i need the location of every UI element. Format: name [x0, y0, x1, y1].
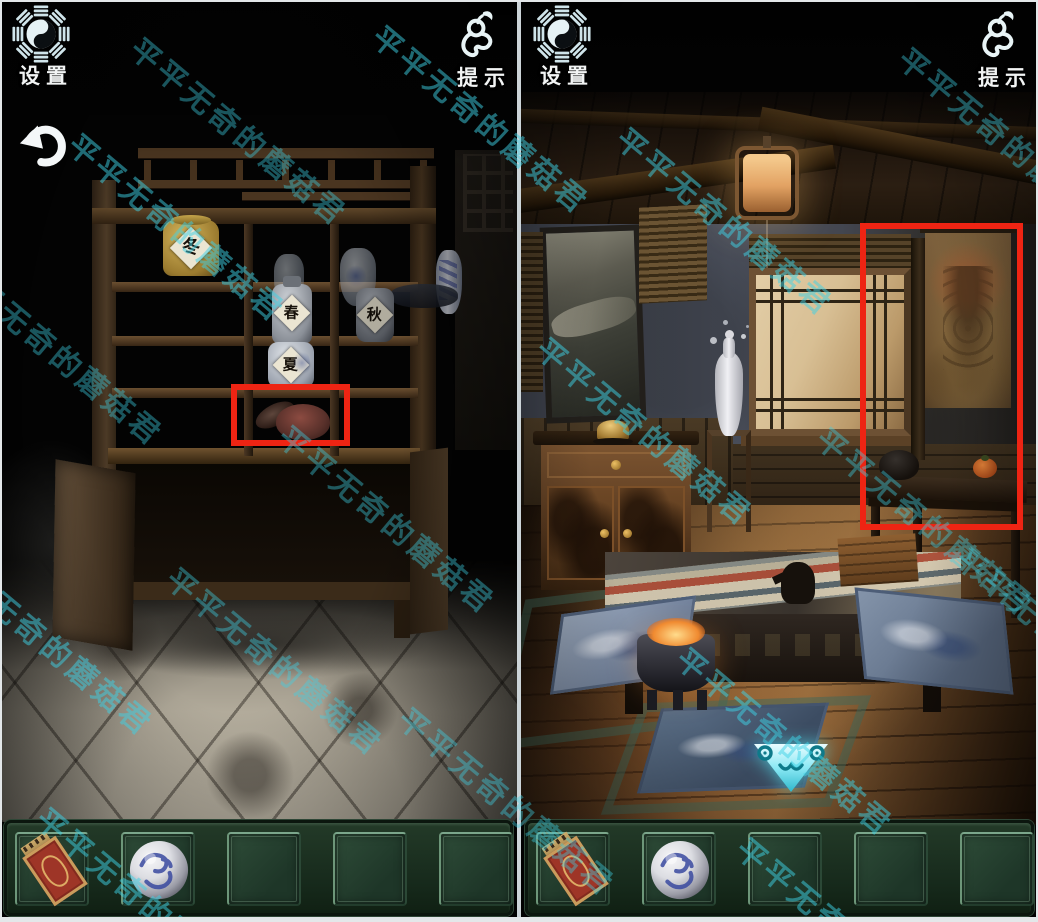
- inventory-slot-1[interactable]: [536, 832, 610, 906]
- inventory-slot-4[interactable]: [854, 832, 928, 906]
- brazier-leg: [647, 690, 657, 710]
- right-scene-panel: 设置 提示: [521, 0, 1038, 922]
- jar-label: 秋: [357, 297, 394, 334]
- inventory-bar: [4, 820, 513, 916]
- flower-vase[interactable]: [715, 352, 743, 436]
- inventory-slot-4[interactable]: [333, 832, 407, 906]
- shelf-leg: [394, 600, 410, 638]
- charcoal-brazier[interactable]: [637, 618, 715, 710]
- hint-button[interactable]: [452, 8, 502, 66]
- bamboo-blind[interactable]: [639, 204, 707, 304]
- jar-label: 夏: [273, 347, 310, 384]
- shelf-rail-lower: [242, 192, 434, 200]
- inventory-slot-3[interactable]: [748, 832, 822, 906]
- inventory-slot-2[interactable]: [642, 832, 716, 906]
- wooden-box[interactable]: [837, 533, 918, 586]
- item-porcelain-ball[interactable]: [128, 839, 190, 901]
- inventory-bar: [525, 820, 1034, 916]
- left-scene-panel: 冬 春 秋 夏: [0, 0, 517, 922]
- settings-button[interactable]: [12, 5, 70, 67]
- inventory-slot-5[interactable]: [960, 832, 1034, 906]
- highlight-rect-right: [860, 223, 1023, 530]
- floor-cushion[interactable]: [855, 587, 1014, 694]
- cloud-arrow-down-icon: [750, 738, 832, 796]
- nav-down-button[interactable]: [750, 738, 832, 800]
- panel-divider: [517, 0, 521, 922]
- inventory-slot-5[interactable]: [439, 832, 513, 906]
- inventory-slot-2[interactable]: [121, 832, 195, 906]
- cabinet-drawer[interactable]: [547, 452, 685, 478]
- inventory-slot-3[interactable]: [227, 832, 301, 906]
- shelf-rail: [138, 180, 434, 188]
- undo-arrow-icon: [16, 122, 70, 170]
- cabinet-base: [108, 582, 420, 600]
- hint-button[interactable]: [973, 8, 1023, 66]
- bagua-yinyang-icon: [533, 5, 591, 63]
- bagua-yinyang-icon: [12, 5, 70, 63]
- porcelain-ball-icon: [128, 839, 190, 901]
- gourd-icon: [452, 8, 502, 62]
- jar-label: 冬: [170, 227, 212, 269]
- fire-glow: [647, 618, 705, 646]
- wall-painting[interactable]: [540, 224, 647, 423]
- shelf-rail-fretwork: [144, 160, 428, 180]
- hint-label: 提示: [446, 62, 516, 92]
- table-bell[interactable]: [597, 420, 629, 440]
- settings-button[interactable]: [533, 5, 591, 67]
- item-matchbox[interactable]: [543, 836, 609, 906]
- jar-autumn[interactable]: 秋: [356, 288, 394, 342]
- jar-spring[interactable]: 春: [272, 284, 312, 344]
- settings-label: 设置: [8, 60, 78, 90]
- brazier-leg: [697, 690, 707, 710]
- vase-stand: [707, 430, 751, 532]
- shelf-top-rail: [138, 148, 434, 158]
- porcelain-ball-icon: [649, 839, 711, 901]
- carved-screen-edge: [455, 150, 517, 450]
- inventory-slot-1[interactable]: [15, 832, 89, 906]
- cabinet-interior[interactable]: [116, 464, 412, 582]
- shelf-board: [108, 448, 420, 464]
- hanging-lantern[interactable]: [735, 146, 799, 220]
- hint-label: 提示: [967, 62, 1037, 92]
- cabinet-door[interactable]: [547, 486, 614, 580]
- open-cabinet-door-right[interactable]: [410, 448, 448, 635]
- bamboo-blind: [521, 232, 543, 392]
- dark-jar-lying[interactable]: [390, 284, 458, 308]
- brazier-leg: [673, 690, 683, 710]
- shelf-board: [92, 208, 436, 224]
- open-cabinet-door-left[interactable]: [52, 459, 135, 651]
- gourd-icon: [973, 8, 1023, 62]
- settings-label: 设置: [529, 60, 599, 90]
- jar-label: 春: [274, 295, 311, 332]
- game-screenshot: 冬 春 秋 夏: [0, 0, 1038, 922]
- jar-winter[interactable]: 冬: [163, 220, 219, 276]
- item-matchbox[interactable]: [22, 836, 88, 906]
- back-button[interactable]: [16, 122, 70, 174]
- highlight-rect-left: [231, 384, 350, 446]
- item-porcelain-ball[interactable]: [649, 839, 711, 901]
- jar-summer[interactable]: 夏: [268, 342, 314, 388]
- teapot-silhouette[interactable]: [773, 554, 823, 606]
